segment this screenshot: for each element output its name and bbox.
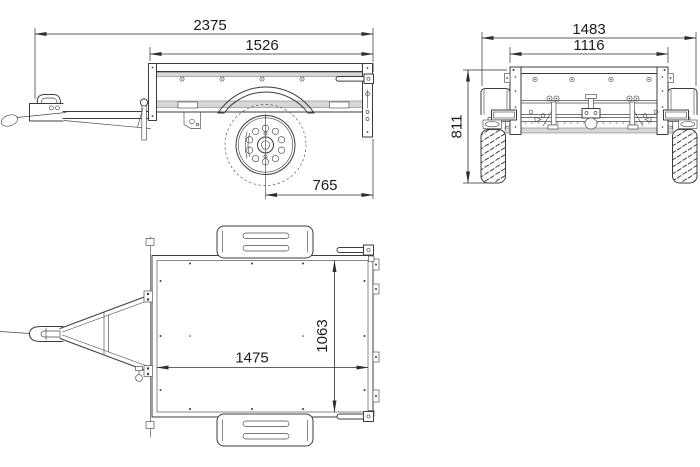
jockey-wheel-rear	[582, 95, 600, 130]
wheel-side	[225, 105, 306, 200]
tail-light-left	[492, 110, 517, 120]
fender-top-lower	[217, 414, 313, 446]
dim-label-bed-length: 1475	[235, 350, 268, 367]
top-view: 1475 1063	[0, 226, 379, 446]
hitch-top	[0, 327, 63, 342]
tail-light-right	[664, 110, 689, 120]
frame-bracket	[184, 112, 201, 129]
trailer-technical-drawing: 2375 1526	[0, 0, 700, 467]
fender-side	[218, 87, 314, 113]
cargo-bed-top	[152, 256, 373, 418]
wheel-left-rear	[481, 130, 506, 184]
dim-side-overall-length: 2375	[35, 17, 373, 99]
fender-top-upper	[217, 226, 313, 258]
dim-label-axle-to-rear: 765	[312, 177, 337, 194]
hitch-coupling	[30, 95, 64, 122]
mudflap-left	[483, 120, 502, 129]
drawbar-clamp-upper	[144, 291, 153, 302]
dim-side-box-length: 1526	[150, 37, 373, 61]
tailgate-bolts	[533, 77, 651, 81]
cargo-box-side	[149, 64, 374, 138]
dim-label-overall-width: 1483	[572, 21, 605, 38]
side-view: 2375 1526	[0, 17, 373, 199]
dim-label-overall-length: 2375	[193, 17, 226, 34]
mudflap-right	[679, 120, 698, 129]
dim-label-box-length: 1526	[245, 37, 278, 54]
drawbar-clamp-lower	[144, 366, 153, 377]
latch-lever-left	[543, 96, 559, 129]
latch-lever-right	[627, 96, 643, 129]
rear-view: 1483 1116 811	[449, 21, 698, 183]
dim-label-height: 811	[449, 115, 466, 139]
drawing-svg: 2375 1526	[0, 0, 700, 467]
dim-label-box-width: 1116	[573, 37, 604, 54]
dim-rear-box-width: 1116	[510, 37, 668, 63]
jockey-winder-top	[136, 367, 143, 382]
jockey-handle	[138, 99, 148, 140]
tie-down-latch-top-right	[337, 245, 374, 255]
rivets-side	[180, 77, 304, 81]
safety-cable	[0, 113, 66, 129]
drawbar-side	[63, 112, 151, 129]
dim-label-bed-width: 1063	[314, 319, 331, 352]
dim-side-axle-to-rear: 765	[266, 139, 374, 199]
drawbar-top	[60, 291, 153, 381]
wheel-right-rear	[673, 130, 698, 184]
